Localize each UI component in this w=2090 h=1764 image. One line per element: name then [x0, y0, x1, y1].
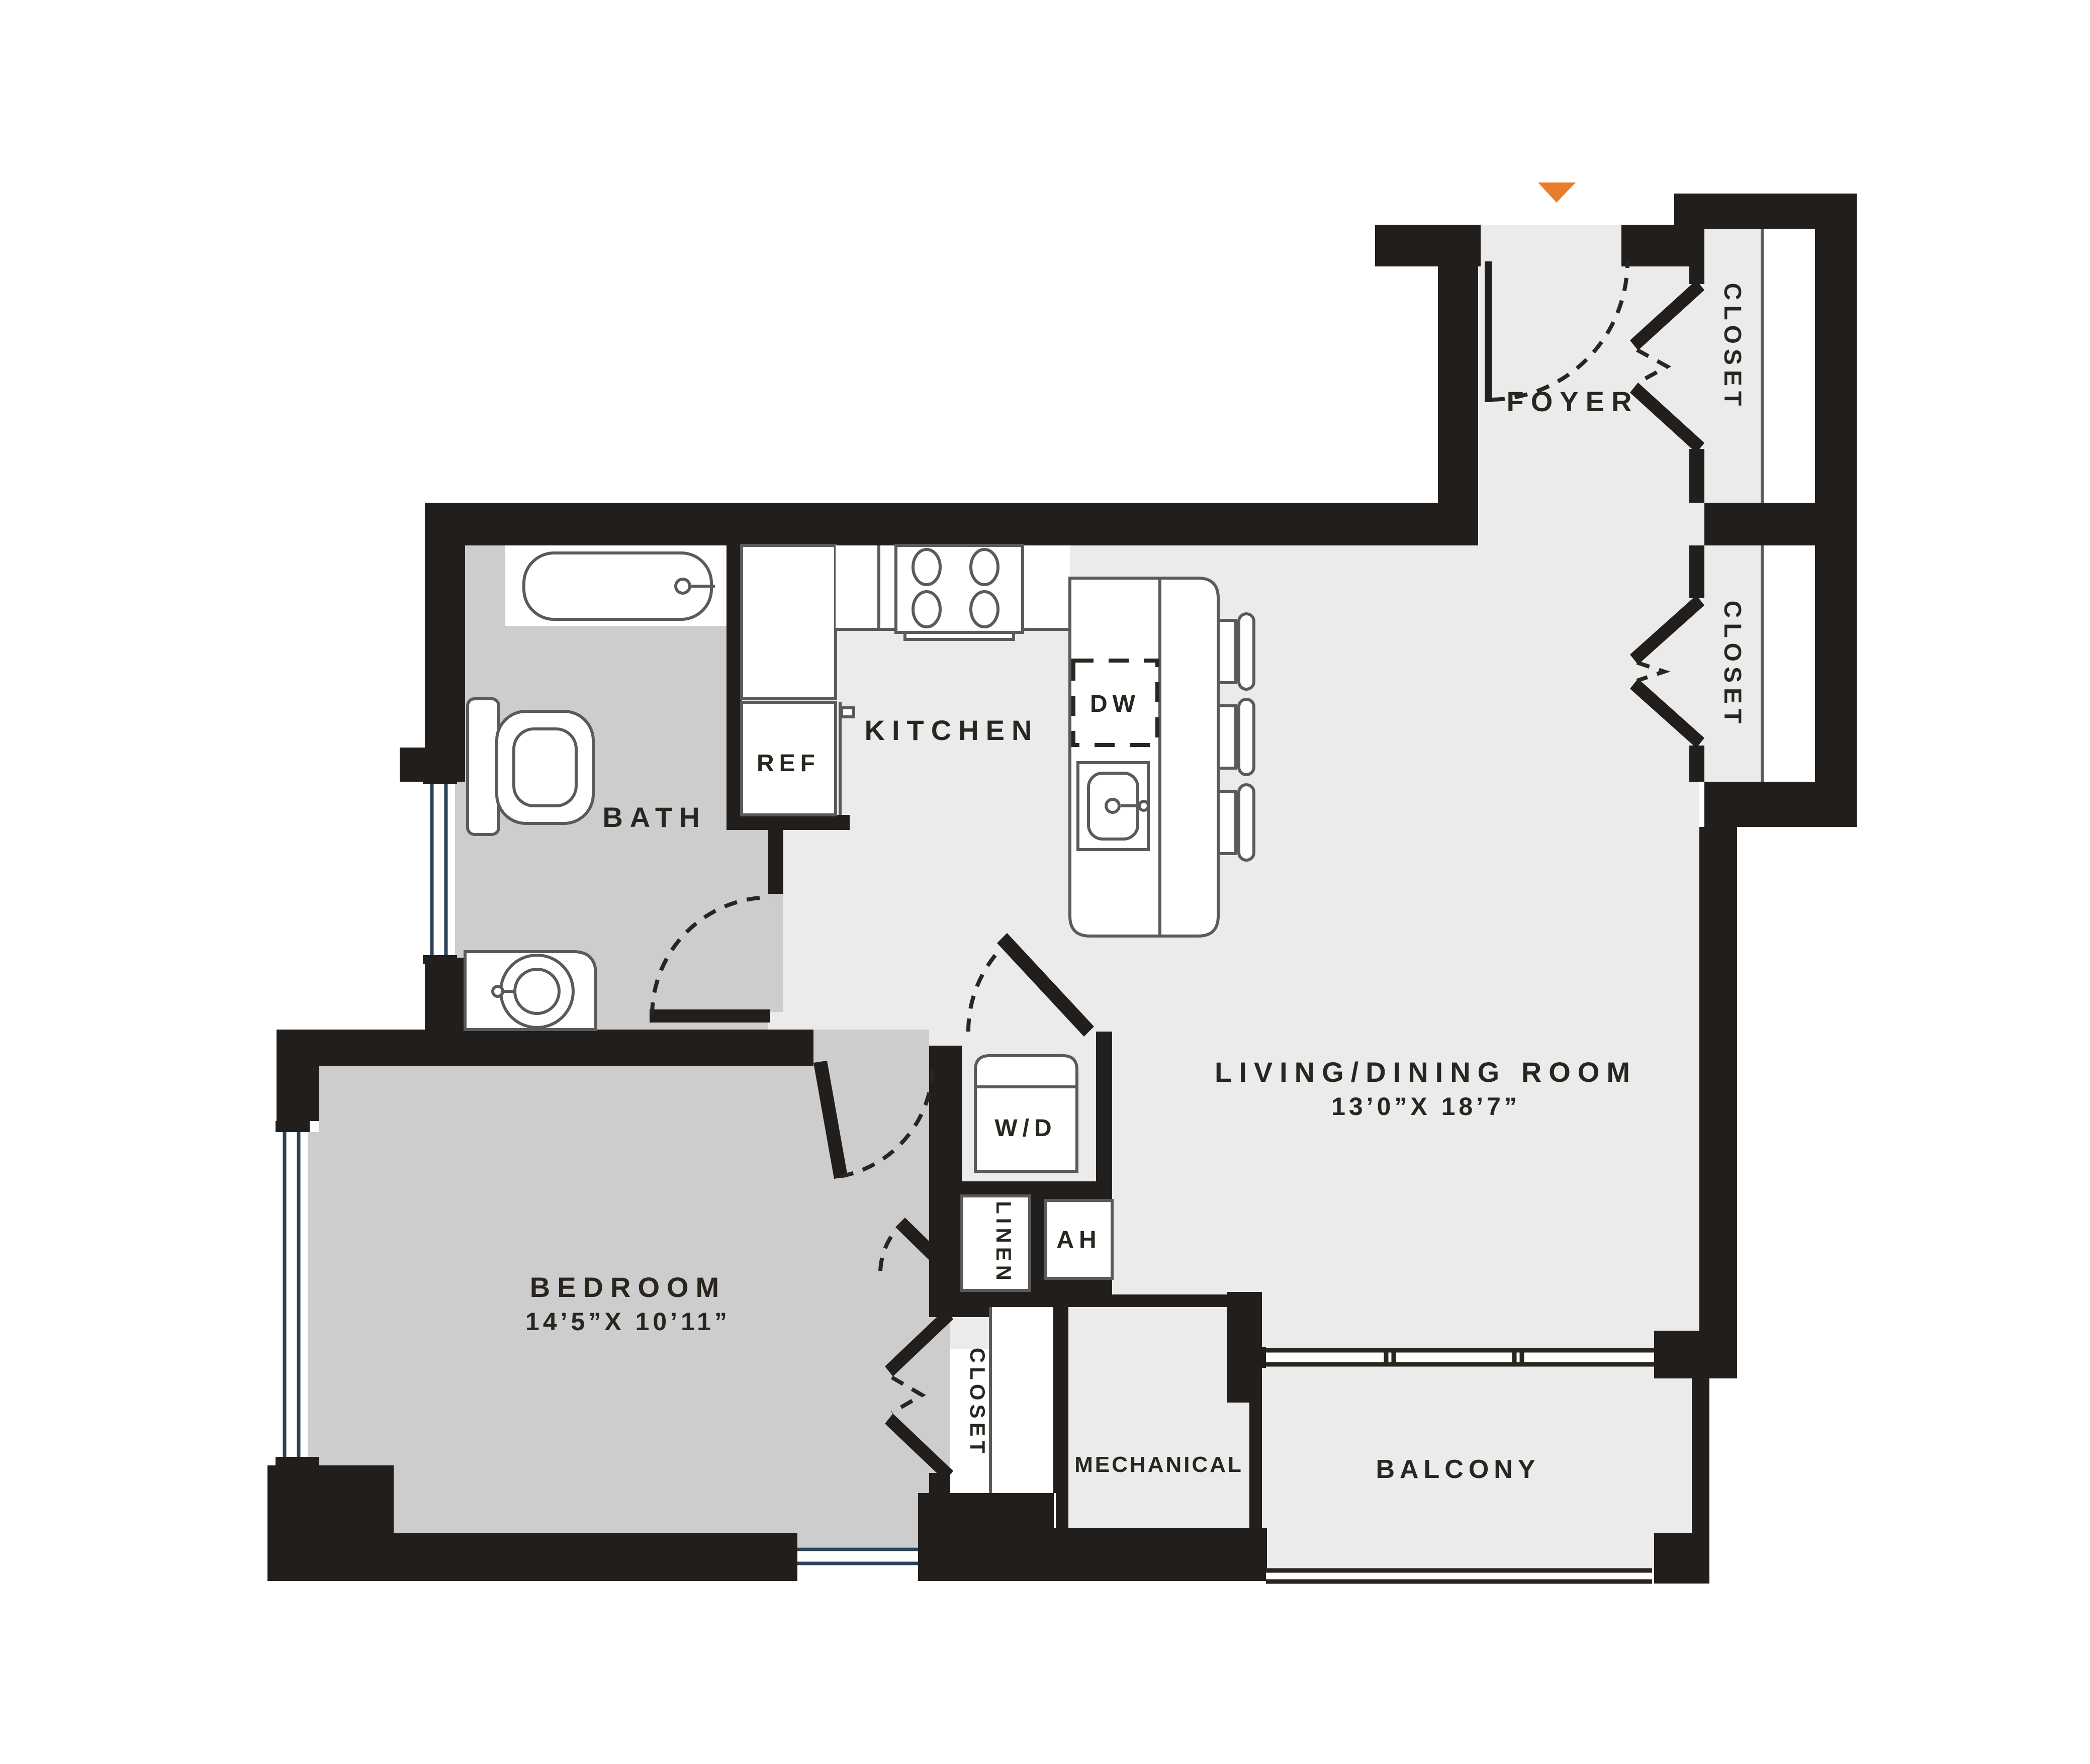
burner-icon [913, 549, 940, 585]
linen-label: LINEN [992, 1201, 1016, 1284]
bedroom-closet-shelf [990, 1307, 1053, 1493]
toilet-bowl-inner [514, 729, 576, 806]
foyer-floor [1478, 225, 1704, 545]
closet-lower-shelf [1762, 545, 1815, 782]
bedroom-dimensions: 14’5”X 10’11” [525, 1308, 731, 1336]
stove-handle-icon [905, 632, 1014, 639]
foyer-label: FOYER [1507, 386, 1639, 417]
burner-icon [913, 592, 940, 627]
bath-faucet-icon [493, 986, 503, 996]
entry-marker-icon [1538, 182, 1576, 203]
closet-lower-label: CLOSET [1719, 601, 1746, 729]
bedroom-window [278, 1132, 308, 1457]
kitchen-cabinet [742, 545, 836, 699]
bath-door-gap-floor [768, 894, 783, 1012]
bedroom-label: BEDROOM [530, 1271, 726, 1303]
bar-stools [1218, 614, 1254, 860]
floor-plan-page: FOYER CLOSET CLOSET KITCHEN REF DW BATH … [0, 0, 2090, 1764]
burner-icon [971, 549, 998, 585]
bath-window-sill-strip [455, 782, 465, 958]
bath-window [425, 784, 455, 955]
bedroom-closet-label: CLOSET [966, 1348, 989, 1457]
bath-sink-inner [515, 969, 559, 1013]
ref-label: REF [757, 750, 820, 777]
sink-faucet-icon [1139, 801, 1148, 810]
wd-label: W/D [994, 1115, 1056, 1142]
mechanical-floor [1068, 1307, 1249, 1528]
living-dining-label: LIVING/DINING ROOM [1215, 1056, 1637, 1088]
ah-label: AH [1056, 1227, 1101, 1253]
ref-handle-icon [842, 708, 854, 717]
floor-plan-drawing: FOYER CLOSET CLOSET KITCHEN REF DW BATH … [0, 0, 2090, 1764]
bath-label: BATH [602, 801, 706, 833]
mechanical-label: MECHANICAL [1074, 1452, 1243, 1477]
entry-door-leaf [1485, 261, 1492, 402]
closet-upper-label: CLOSET [1719, 283, 1746, 411]
kitchen-label: KITCHEN [865, 714, 1039, 746]
balcony-label: BALCONY [1376, 1455, 1540, 1484]
closet-upper-shelf [1762, 229, 1815, 503]
burner-icon [971, 592, 998, 627]
washer-dryer [975, 1056, 1077, 1171]
dw-label: DW [1090, 691, 1140, 717]
bedroom-door-gap-floor [813, 1030, 929, 1066]
bath-door-leaf [650, 1009, 770, 1023]
bath-floor-ext [726, 830, 768, 1030]
sink-drain-icon [1106, 799, 1119, 812]
bedroom-window-recess-floor [797, 1533, 918, 1547]
bedroom-window-strip [308, 1132, 319, 1457]
tub-drain-icon [676, 579, 690, 593]
kitchen-peninsula [1070, 578, 1218, 936]
living-dining-dimensions: 13’0”X 18’7” [1331, 1092, 1520, 1121]
toilet-tank [468, 699, 499, 834]
